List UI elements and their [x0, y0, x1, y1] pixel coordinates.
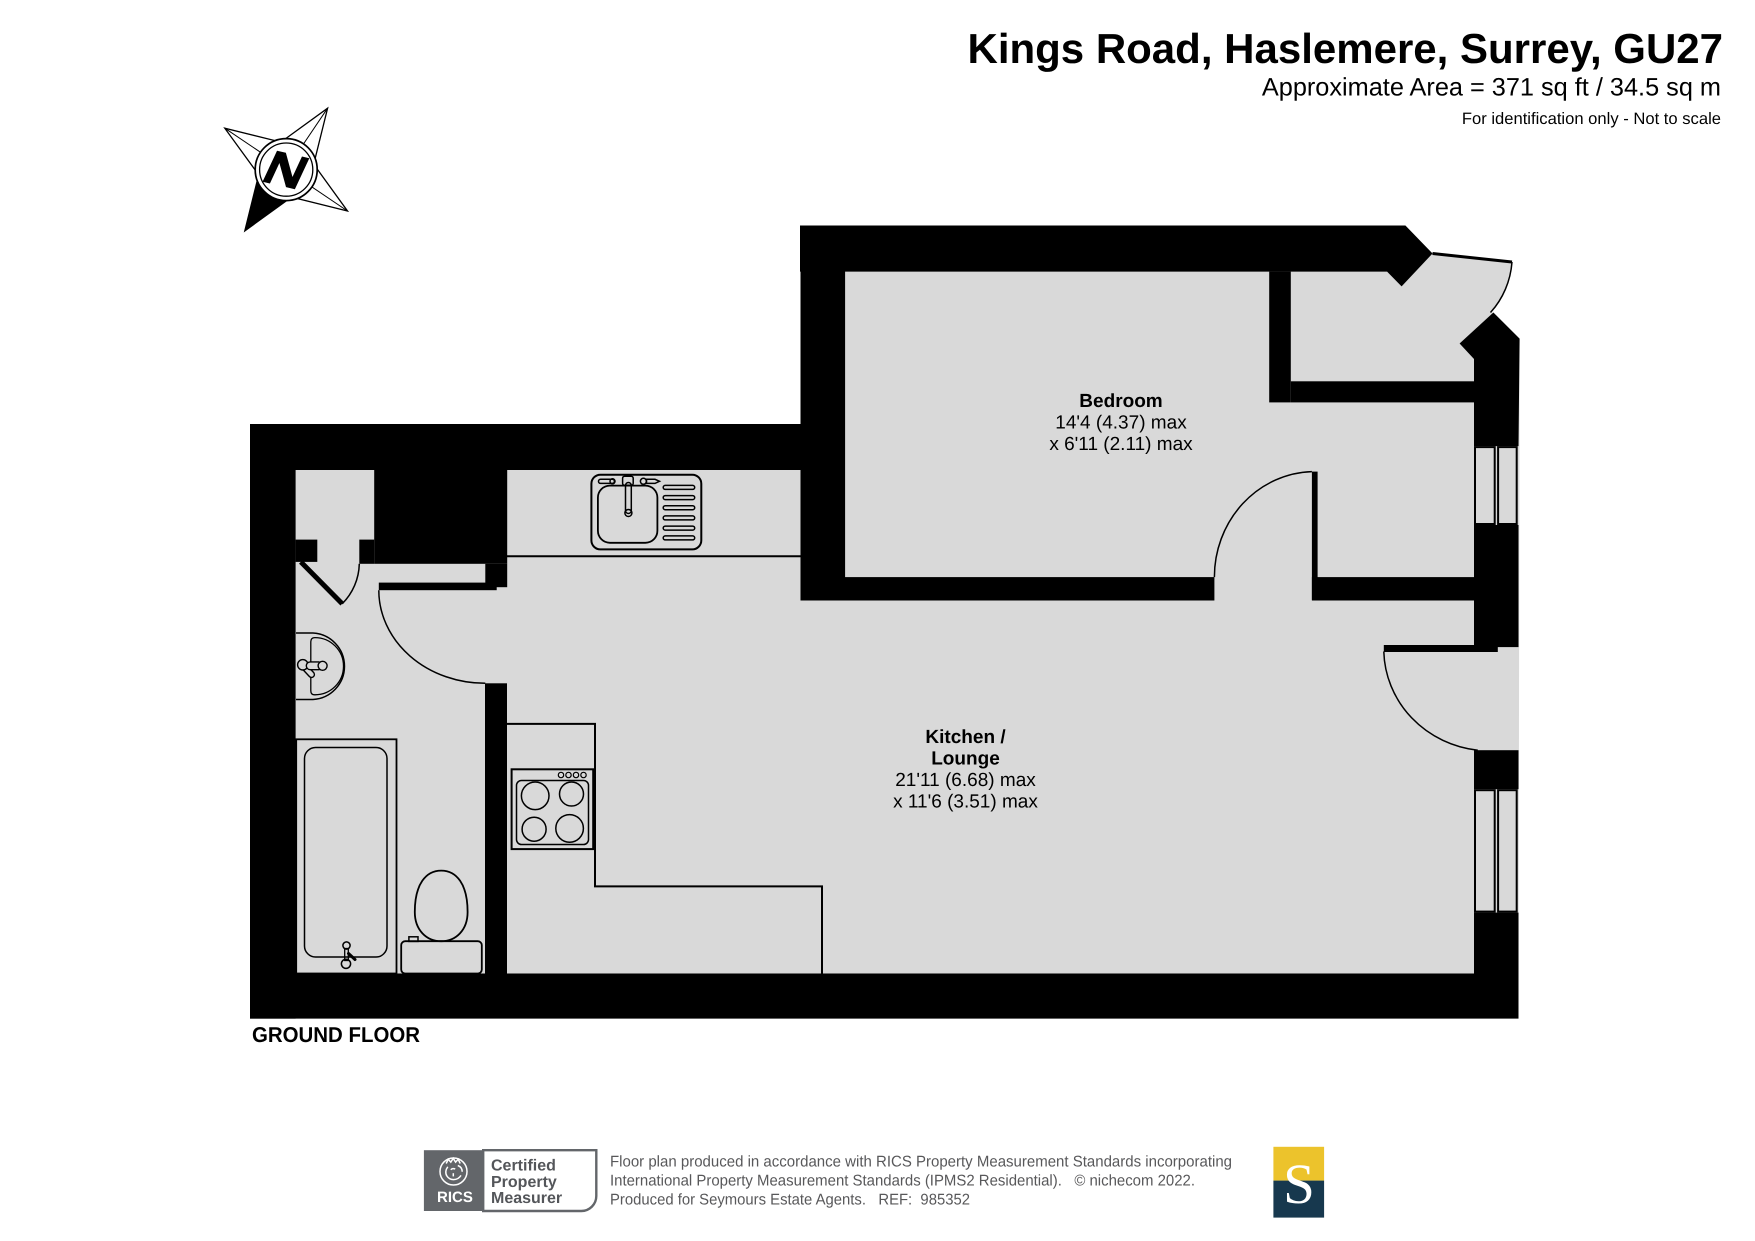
- svg-text:Certified: Certified: [491, 1157, 556, 1174]
- svg-text:S: S: [1283, 1153, 1315, 1216]
- svg-text:Produced for Seymours Estate A: Produced for Seymours Estate Agents. REF…: [610, 1192, 970, 1209]
- svg-text:Lounge: Lounge: [931, 748, 1000, 769]
- svg-text:International Property Measure: International Property Measurement Stand…: [610, 1173, 1195, 1190]
- svg-text:Approximate Area = 371 sq ft /: Approximate Area = 371 sq ft / 34.5 sq m: [1262, 74, 1721, 102]
- svg-text:Property: Property: [491, 1174, 557, 1191]
- svg-text:Floor plan produced in accorda: Floor plan produced in accordance with R…: [610, 1153, 1232, 1170]
- svg-text:21'11 (6.68) max: 21'11 (6.68) max: [895, 770, 1036, 791]
- svg-text:GROUND FLOOR: GROUND FLOOR: [252, 1023, 420, 1047]
- svg-text:Bedroom: Bedroom: [1079, 391, 1162, 412]
- svg-text:14'4 (4.37) max: 14'4 (4.37) max: [1055, 413, 1187, 434]
- svg-text:x 11'6 (3.51) max: x 11'6 (3.51) max: [893, 791, 1038, 812]
- svg-text:x 6'11 (2.11) max: x 6'11 (2.11) max: [1049, 434, 1193, 455]
- svg-text:Kitchen /: Kitchen /: [925, 727, 1006, 748]
- svg-text:Kings Road, Haslemere, Surrey,: Kings Road, Haslemere, Surrey, GU27: [967, 25, 1723, 72]
- svg-text:RICS: RICS: [437, 1189, 473, 1206]
- svg-text:For identification only - Not: For identification only - Not to scale: [1462, 109, 1721, 128]
- svg-text:Measurer: Measurer: [491, 1190, 562, 1207]
